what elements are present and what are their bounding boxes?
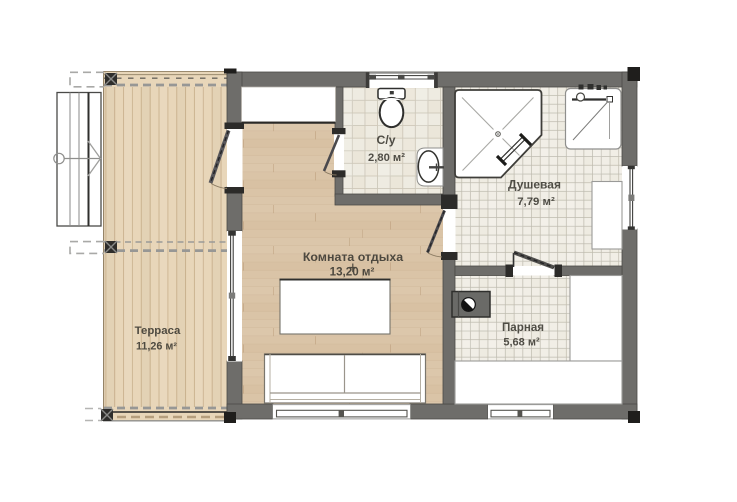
svg-text:Душевая: Душевая bbox=[508, 178, 561, 192]
svg-text:2,80 м²: 2,80 м² bbox=[368, 152, 405, 164]
svg-text:7,79 м²: 7,79 м² bbox=[517, 196, 555, 208]
svg-text:11,26 м²: 11,26 м² bbox=[136, 341, 177, 353]
svg-text:Парная: Парная bbox=[502, 321, 544, 334]
svg-text:Терраса: Терраса bbox=[135, 325, 181, 337]
svg-text:С/у: С/у bbox=[377, 133, 396, 147]
svg-text:5,68 м²: 5,68 м² bbox=[503, 337, 540, 349]
svg-text:Комната отдыха: Комната отдыха bbox=[303, 250, 403, 264]
